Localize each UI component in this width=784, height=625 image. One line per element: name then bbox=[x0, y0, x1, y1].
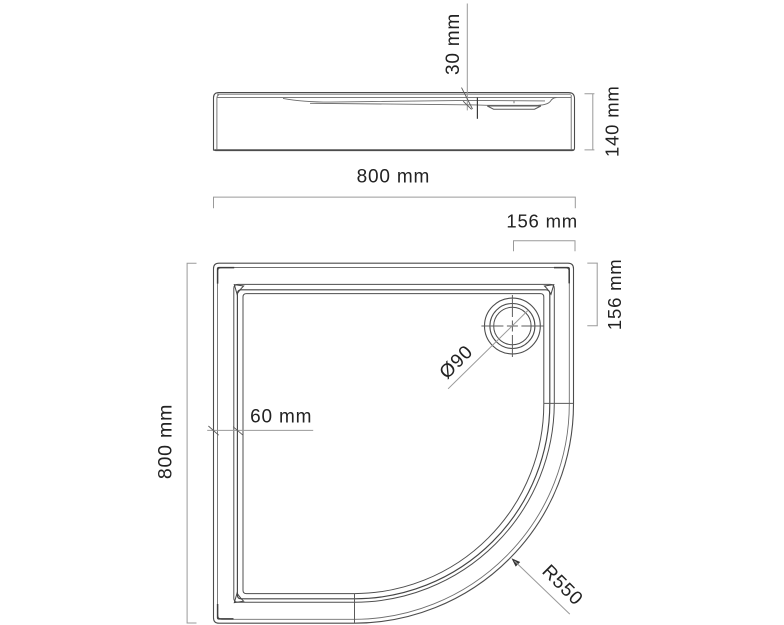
svg-text:30 mm: 30 mm bbox=[443, 13, 464, 75]
svg-text:156 mm: 156 mm bbox=[604, 258, 625, 330]
svg-text:800 mm: 800 mm bbox=[357, 166, 430, 187]
svg-text:60 mm: 60 mm bbox=[250, 407, 312, 428]
svg-text:156 mm: 156 mm bbox=[506, 210, 578, 231]
svg-text:800 mm: 800 mm bbox=[155, 404, 177, 479]
svg-text:140 mm: 140 mm bbox=[601, 85, 622, 157]
